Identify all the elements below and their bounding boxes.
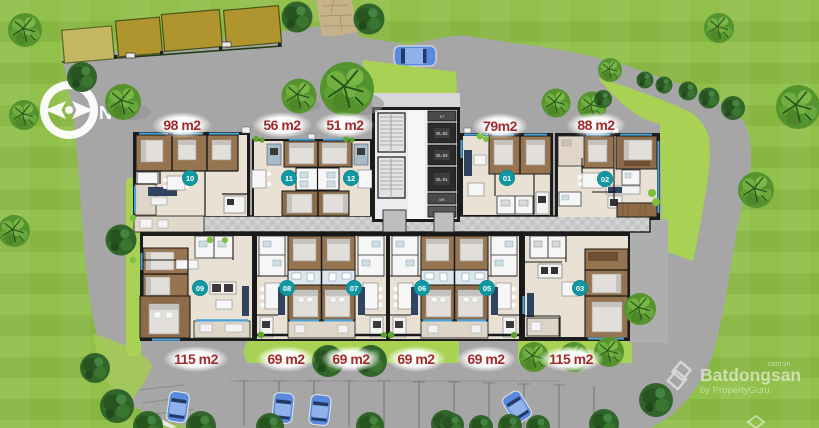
svg-text:KT: KT (440, 115, 445, 119)
svg-text:98 m2: 98 m2 (163, 117, 201, 133)
svg-text:by PropertyGuru: by PropertyGuru (700, 385, 770, 396)
svg-text:09: 09 (196, 284, 204, 293)
svg-text:01: 01 (503, 174, 511, 183)
svg-text:79m2: 79m2 (483, 118, 518, 134)
svg-text:11: 11 (285, 174, 293, 183)
svg-text:07: 07 (350, 284, 358, 293)
svg-text:69 m2: 69 m2 (267, 351, 305, 367)
svg-text:10: 10 (186, 174, 194, 183)
svg-text:08: 08 (283, 284, 291, 293)
svg-text:Batdongsan: Batdongsan (700, 365, 801, 385)
svg-text:EL-02: EL-02 (436, 131, 448, 136)
svg-text:69 m2: 69 m2 (397, 351, 435, 367)
svg-text:115 m2: 115 m2 (549, 351, 593, 367)
svg-text:EL-01: EL-01 (436, 177, 448, 182)
svg-text:03: 03 (576, 284, 584, 293)
svg-text:88 m2: 88 m2 (577, 117, 615, 133)
svg-text:MB: MB (439, 198, 445, 202)
svg-text:12: 12 (347, 174, 355, 183)
svg-text:115 m2: 115 m2 (174, 351, 218, 367)
svg-text:EL-02: EL-02 (436, 153, 448, 158)
svg-text:02: 02 (601, 175, 609, 184)
svg-text:69 m2: 69 m2 (332, 351, 370, 367)
svg-text:.com.vn: .com.vn (766, 361, 791, 368)
svg-text:56 m2: 56 m2 (263, 117, 301, 133)
svg-text:05: 05 (483, 284, 491, 293)
svg-text:69 m2: 69 m2 (467, 351, 505, 367)
svg-text:51 m2: 51 m2 (326, 117, 364, 133)
svg-text:06: 06 (418, 284, 426, 293)
